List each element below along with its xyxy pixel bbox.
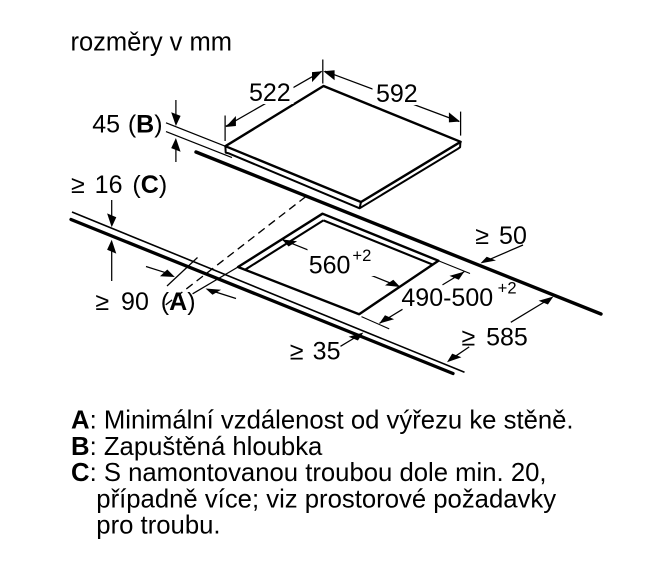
- svg-text:592: 592: [376, 80, 418, 108]
- svg-text:≥ 35: ≥ 35: [290, 338, 341, 366]
- svg-text:45 (B): 45 (B): [92, 111, 162, 139]
- svg-text:C: S namontovanou troubou dole: C: S namontovanou troubou dole min. 20,: [71, 459, 547, 487]
- svg-text:B: Zapuštěná hloubka: B: Zapuštěná hloubka: [71, 433, 323, 461]
- svg-text:pro troubu.: pro troubu.: [96, 512, 220, 540]
- svg-text:rozměry v mm: rozměry v mm: [71, 29, 233, 57]
- svg-text:≥ 16 (C): ≥ 16 (C): [71, 171, 167, 199]
- svg-text:případně více; viz prostorové: případně více; viz prostorové požadavky: [96, 485, 556, 513]
- svg-text:≥ 90 (A): ≥ 90 (A): [95, 288, 195, 316]
- svg-text:≥ 50: ≥ 50: [475, 222, 527, 250]
- svg-text:≥ 585: ≥ 585: [462, 323, 528, 351]
- svg-text:A: Minimální vzdálenost od výř: A: Minimální vzdálenost od výřezu ke stě…: [71, 407, 574, 435]
- svg-text:522: 522: [249, 79, 291, 107]
